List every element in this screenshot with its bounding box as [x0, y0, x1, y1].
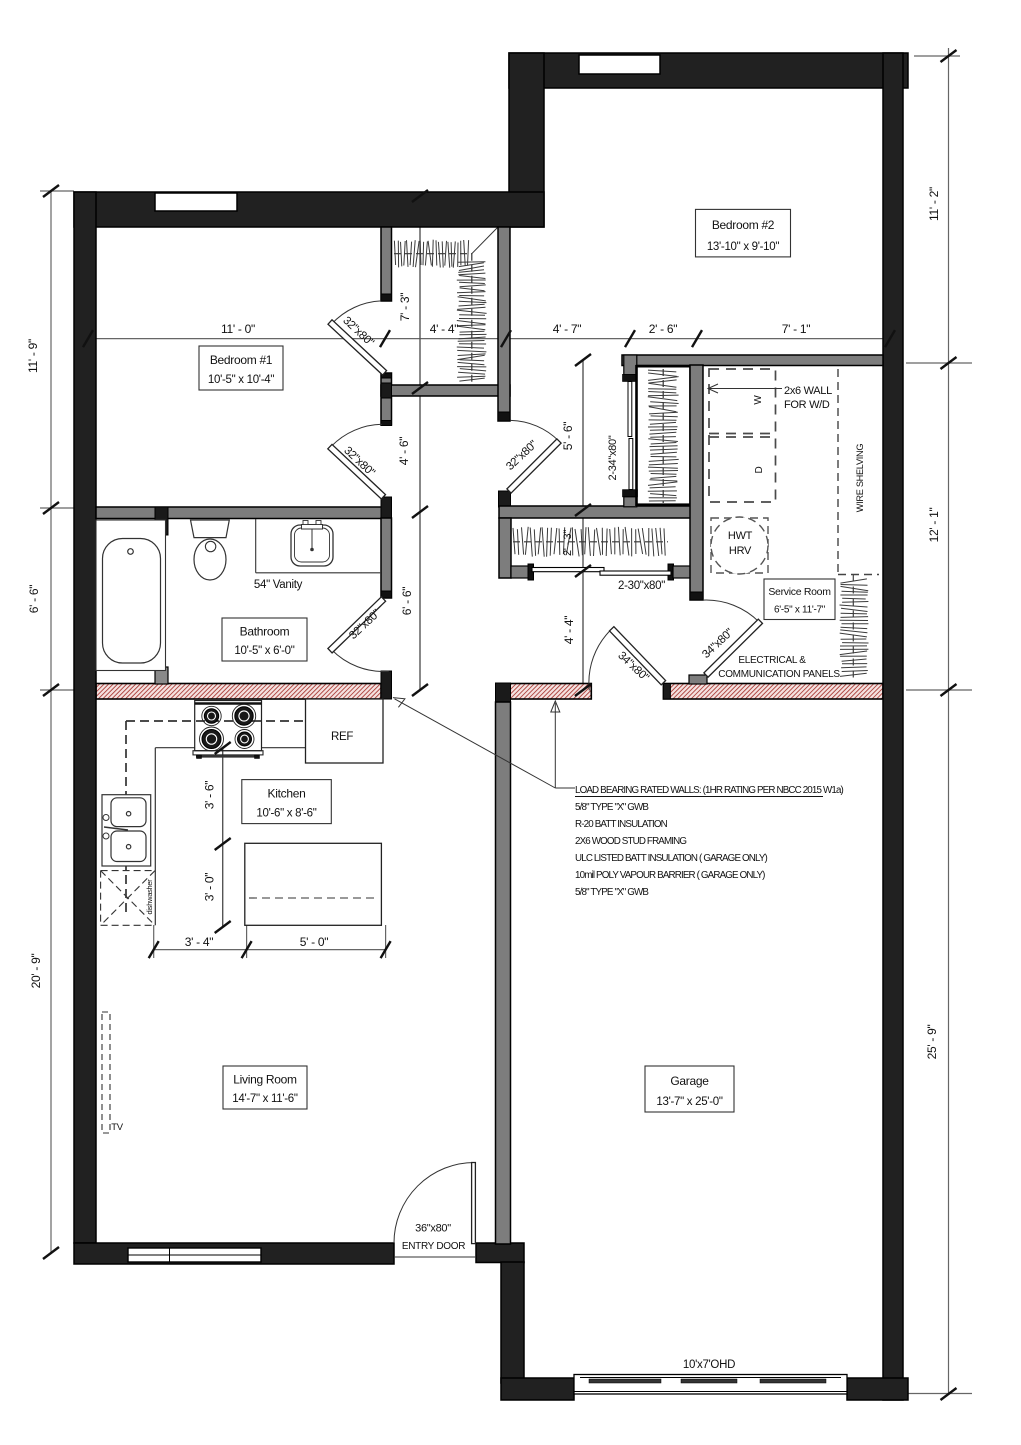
svg-text:COMMUNICATION PANELS: COMMUNICATION PANELS — [718, 669, 840, 680]
svg-text:Living Room: Living Room — [233, 1073, 297, 1087]
svg-text:36"x80": 36"x80" — [415, 1223, 451, 1235]
svg-text:25' - 9": 25' - 9" — [925, 1025, 939, 1060]
svg-text:5/8" TYPE "X" GWB: 5/8" TYPE "X" GWB — [575, 887, 649, 898]
svg-text:ELECTRICAL &: ELECTRICAL & — [738, 655, 806, 666]
svg-text:3' - 0": 3' - 0" — [203, 873, 217, 902]
svg-text:2x6 WALL: 2x6 WALL — [784, 385, 832, 397]
svg-text:5' - 6": 5' - 6" — [561, 422, 575, 451]
svg-text:7' - 3": 7' - 3" — [398, 293, 412, 322]
svg-text:WIRE SHELVING: WIRE SHELVING — [855, 444, 865, 513]
svg-text:4' - 7": 4' - 7" — [553, 322, 582, 336]
svg-text:FOR W/D: FOR W/D — [784, 399, 830, 411]
svg-text:Bathroom: Bathroom — [240, 625, 290, 639]
svg-text:7' - 1": 7' - 1" — [782, 322, 811, 336]
svg-text:2-34"x80": 2-34"x80" — [607, 435, 619, 480]
svg-text:11' - 9": 11' - 9" — [26, 339, 40, 373]
svg-text:6' - 6": 6' - 6" — [27, 585, 41, 614]
svg-text:10mil POLY VAPOUR BARRIER ( GA: 10mil POLY VAPOUR BARRIER ( GARAGE ONLY) — [575, 870, 765, 881]
svg-text:4' - 4": 4' - 4" — [562, 616, 576, 645]
svg-text:4' - 6": 4' - 6" — [397, 437, 411, 466]
svg-text:10'-6" x 8'-6": 10'-6" x 8'-6" — [256, 808, 316, 820]
svg-text:12' - 1": 12' - 1" — [927, 508, 941, 543]
svg-text:Service Room: Service Room — [768, 586, 831, 598]
svg-text:D: D — [754, 466, 765, 473]
svg-text:20' - 9": 20' - 9" — [29, 954, 43, 989]
svg-text:Garage: Garage — [670, 1074, 709, 1088]
svg-text:4' - 4": 4' - 4" — [430, 322, 459, 336]
svg-text:HRV: HRV — [729, 545, 752, 557]
svg-text:W: W — [753, 395, 764, 405]
svg-text:REF: REF — [331, 731, 353, 743]
svg-text:R-20 BATT INSULATION: R-20 BATT INSULATION — [575, 819, 668, 830]
svg-text:10'-5" x 10'-4": 10'-5" x 10'-4" — [208, 374, 274, 386]
svg-text:LOAD BEARING RATED WALLS: (1HR: LOAD BEARING RATED WALLS: (1HR RATING PE… — [575, 785, 844, 796]
svg-text:Kitchen: Kitchen — [268, 787, 306, 801]
svg-text:54" Vanity: 54" Vanity — [254, 579, 303, 591]
svg-text:2' - 3": 2' - 3" — [562, 530, 574, 556]
svg-text:dishwasher: dishwasher — [145, 879, 154, 915]
svg-text:5/8" TYPE "X" GWB: 5/8" TYPE "X" GWB — [575, 802, 649, 813]
svg-text:Bedroom #2: Bedroom #2 — [712, 218, 775, 232]
svg-text:11' - 2": 11' - 2" — [927, 187, 941, 221]
svg-text:11' - 0": 11' - 0" — [221, 322, 255, 336]
svg-text:ENTRY DOOR: ENTRY DOOR — [402, 1241, 465, 1252]
svg-text:3' - 6": 3' - 6" — [203, 781, 217, 810]
svg-text:10'x7'OHD: 10'x7'OHD — [683, 1359, 735, 1371]
svg-text:ULC LISTED BATT INSULATION ( G: ULC LISTED BATT INSULATION ( GARAGE ONLY… — [575, 853, 768, 864]
svg-text:10'-5" x 6'-0": 10'-5" x 6'-0" — [234, 645, 294, 657]
svg-text:5' - 0": 5' - 0" — [300, 935, 329, 949]
svg-text:Bedroom #1: Bedroom #1 — [210, 353, 273, 367]
svg-text:TV: TV — [111, 1122, 124, 1133]
svg-text:3' - 4": 3' - 4" — [185, 935, 214, 949]
svg-text:2' - 6": 2' - 6" — [649, 322, 678, 336]
svg-text:13'-7" x 25'-0": 13'-7" x 25'-0" — [656, 1096, 722, 1108]
svg-text:HWT: HWT — [728, 530, 753, 542]
svg-text:13'-10" x 9'-10": 13'-10" x 9'-10" — [707, 241, 780, 253]
svg-text:14'-7" x 11'-6": 14'-7" x 11'-6" — [232, 1093, 298, 1105]
svg-text:2X6 WOOD STUD FRAMING: 2X6 WOOD STUD FRAMING — [575, 836, 686, 847]
svg-text:2-30"x80": 2-30"x80" — [618, 580, 665, 592]
svg-text:6' - 6": 6' - 6" — [400, 587, 414, 616]
svg-text:6'-5" x 11'-7": 6'-5" x 11'-7" — [774, 605, 826, 616]
